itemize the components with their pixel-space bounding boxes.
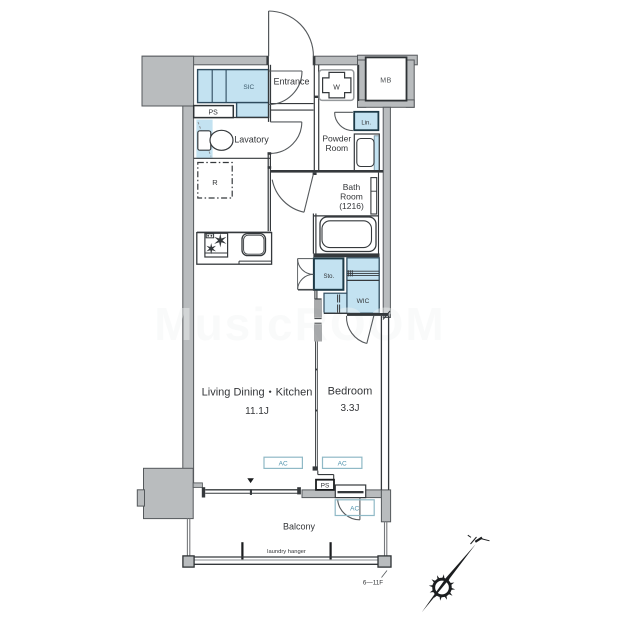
svg-text:Powder: Powder [322,133,351,143]
svg-text:Bath: Bath [343,182,361,192]
svg-text:AC: AC [338,460,347,467]
svg-text:SIC: SIC [243,84,254,91]
svg-text:(1216): (1216) [339,201,364,211]
svg-text:Sto.: Sto. [323,274,334,280]
svg-text:Room: Room [340,192,363,202]
svg-text:Living Dining・Kitchen: Living Dining・Kitchen [202,387,313,399]
svg-text:Lin.: Lin. [361,120,371,126]
svg-text:Balcony: Balcony [283,522,316,532]
svg-text:AC: AC [279,460,288,467]
svg-text:11.1J: 11.1J [245,406,269,417]
svg-text:Lavatory: Lavatory [234,134,269,144]
svg-text:PS: PS [321,482,330,489]
svg-text:Entrance: Entrance [273,77,309,87]
svg-text:AC: AC [350,505,359,512]
svg-text:MusicROOM: MusicROOM [154,298,445,350]
svg-text:3.3J: 3.3J [341,403,360,414]
svg-text:Bedroom: Bedroom [328,386,373,398]
svg-text:Room: Room [325,143,348,153]
svg-text:R: R [212,178,218,187]
svg-text:MB: MB [380,77,392,84]
svg-text:PS: PS [209,110,219,117]
svg-text:laundry hanger: laundry hanger [267,549,306,555]
svg-text:6—11F: 6—11F [363,579,383,586]
svg-text:W: W [333,84,340,91]
svg-text:WIC: WIC [357,298,370,305]
